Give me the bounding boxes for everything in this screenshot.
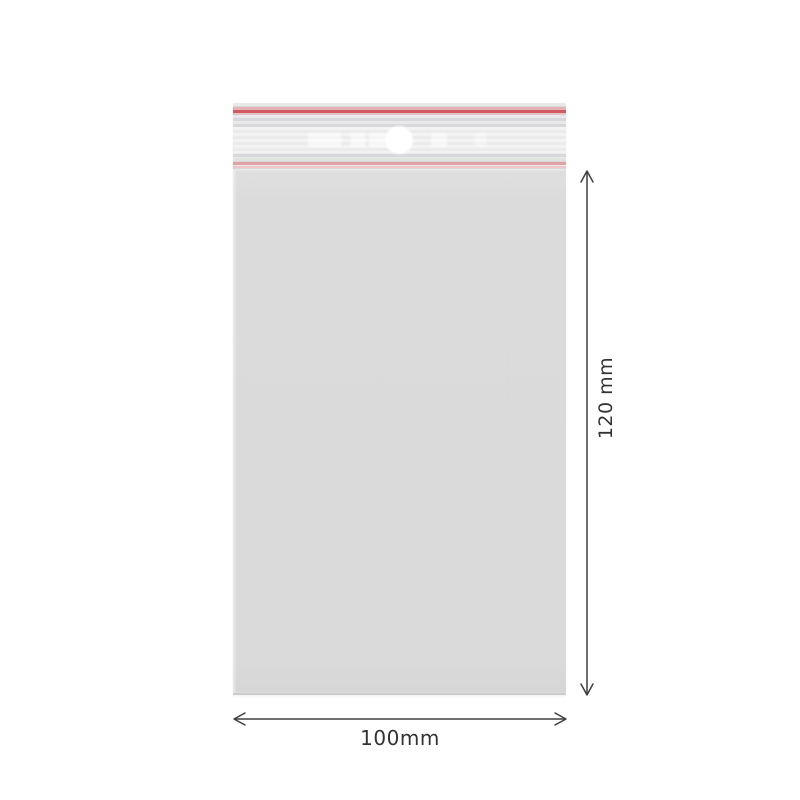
zip-bag xyxy=(233,103,566,695)
zipper-pink-fade-line xyxy=(233,113,566,115)
emboss-mark xyxy=(475,133,487,147)
zipper-pink-line-bottom xyxy=(233,162,566,165)
product-diagram-canvas: 120 mm 100mm xyxy=(0,0,800,800)
height-dimension-label: 120 mm xyxy=(595,357,617,439)
zipper-tint-line xyxy=(233,158,566,161)
zipper-pale-pink-line xyxy=(233,166,566,168)
width-dimension-arrow xyxy=(234,713,566,725)
emboss-mark xyxy=(369,133,386,147)
height-dimension-arrow xyxy=(581,171,593,695)
hang-hole-icon xyxy=(386,127,412,153)
zipper-header xyxy=(233,103,566,170)
emboss-mark xyxy=(350,133,366,147)
bag-body xyxy=(233,170,566,695)
emboss-mark xyxy=(431,133,447,147)
emboss-mark xyxy=(308,133,342,147)
width-dimension-label: 100mm xyxy=(360,726,440,750)
